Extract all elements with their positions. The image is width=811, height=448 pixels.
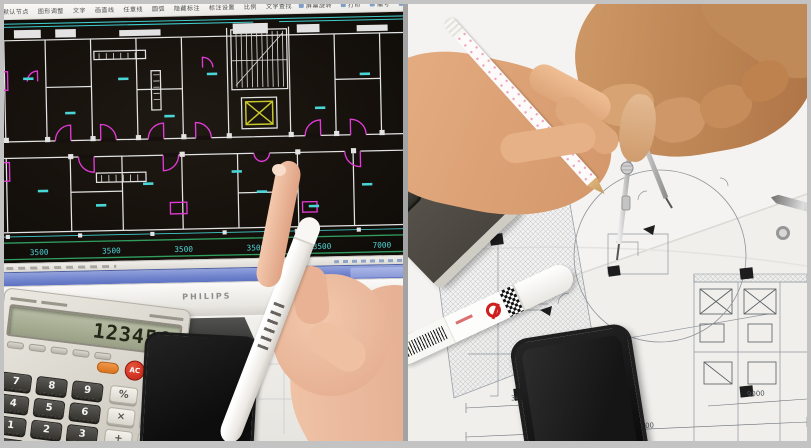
blueprint-dim-text: 9000 bbox=[747, 389, 765, 398]
cad-menu-item[interactable]: 文字 bbox=[73, 5, 86, 14]
cad-toolbar-item[interactable]: 编号 bbox=[370, 4, 390, 8]
on-key bbox=[96, 361, 119, 375]
digit-key: 0 bbox=[4, 437, 24, 441]
cad-menu-item[interactable]: 任意线 bbox=[123, 4, 143, 13]
cad-toolbar-group: 屏幕旋转打印编号变距风格关于资料 bbox=[299, 4, 403, 10]
digit-key: 1 bbox=[4, 415, 27, 436]
digit-key: 7 bbox=[4, 371, 32, 392]
tool-icon bbox=[399, 4, 403, 6]
cad-dim-text: 3500 bbox=[174, 245, 193, 254]
digit-keys: 789456123000. bbox=[4, 371, 104, 441]
cad-dim-text: 7000 bbox=[372, 241, 391, 250]
photo-collage: 默认节点图形调整文字画直线任意线圆弧隐藏标注标注设置比例文字查找 屏幕旋转打印编… bbox=[0, 0, 811, 448]
tool-icon bbox=[370, 4, 375, 6]
cad-menu-item[interactable]: 圆弧 bbox=[152, 4, 165, 13]
operator-key: % bbox=[109, 385, 139, 405]
cad-menu-item[interactable]: 画直线 bbox=[95, 5, 115, 14]
cad-screen: 3500 3500 3500 3500 3500 7000 56000 bbox=[4, 12, 403, 264]
cad-menu-item[interactable]: 标注设置 bbox=[209, 4, 235, 12]
system-tray bbox=[350, 267, 403, 278]
cad-menu-item[interactable]: 图形调整 bbox=[38, 6, 64, 16]
digit-key: 4 bbox=[4, 393, 30, 414]
cad-dim-text: 3500 bbox=[313, 242, 332, 251]
operator-key: × bbox=[106, 407, 136, 427]
cad-dim-text: 3500 bbox=[102, 246, 121, 255]
digit-key: 6 bbox=[68, 402, 101, 423]
tool-icon bbox=[341, 4, 346, 7]
cad-menu-item[interactable]: 隐藏标注 bbox=[174, 4, 200, 13]
digit-key: 3 bbox=[66, 424, 99, 441]
right-photo-blueprint-drafting: 3400 9000 30700 014 bbox=[408, 4, 807, 441]
digit-key: 9 bbox=[71, 380, 104, 401]
compass-adjust-wheel bbox=[776, 226, 790, 240]
operator-key: + bbox=[103, 428, 133, 441]
cad-menu-item[interactable]: 文字查找 bbox=[266, 4, 292, 11]
cad-menu-item[interactable]: 默认节点 bbox=[4, 7, 29, 17]
digit-key: 8 bbox=[35, 376, 68, 397]
cad-floorplan-drawing: 3500 3500 3500 3500 3500 7000 56000 bbox=[4, 12, 403, 271]
left-photo-cad-workstation: 默认节点图形调整文字画直线任意线圆弧隐藏标注标注设置比例文字查找 屏幕旋转打印编… bbox=[4, 4, 403, 441]
digit-key: 2 bbox=[30, 419, 63, 440]
cad-toolbar-item[interactable]: 打印 bbox=[341, 4, 361, 9]
cad-menu-item[interactable]: 比例 bbox=[244, 4, 257, 11]
digit-key: 5 bbox=[33, 398, 66, 419]
cad-toolbar-item[interactable]: 变距 bbox=[399, 4, 403, 8]
tool-icon bbox=[299, 4, 304, 8]
monitor-brand-logo: PHILIPS bbox=[182, 291, 231, 301]
cad-toolbar-item[interactable]: 屏幕旋转 bbox=[299, 4, 332, 10]
cad-dim-text: 3500 bbox=[30, 248, 49, 257]
status-dashes bbox=[334, 259, 403, 263]
